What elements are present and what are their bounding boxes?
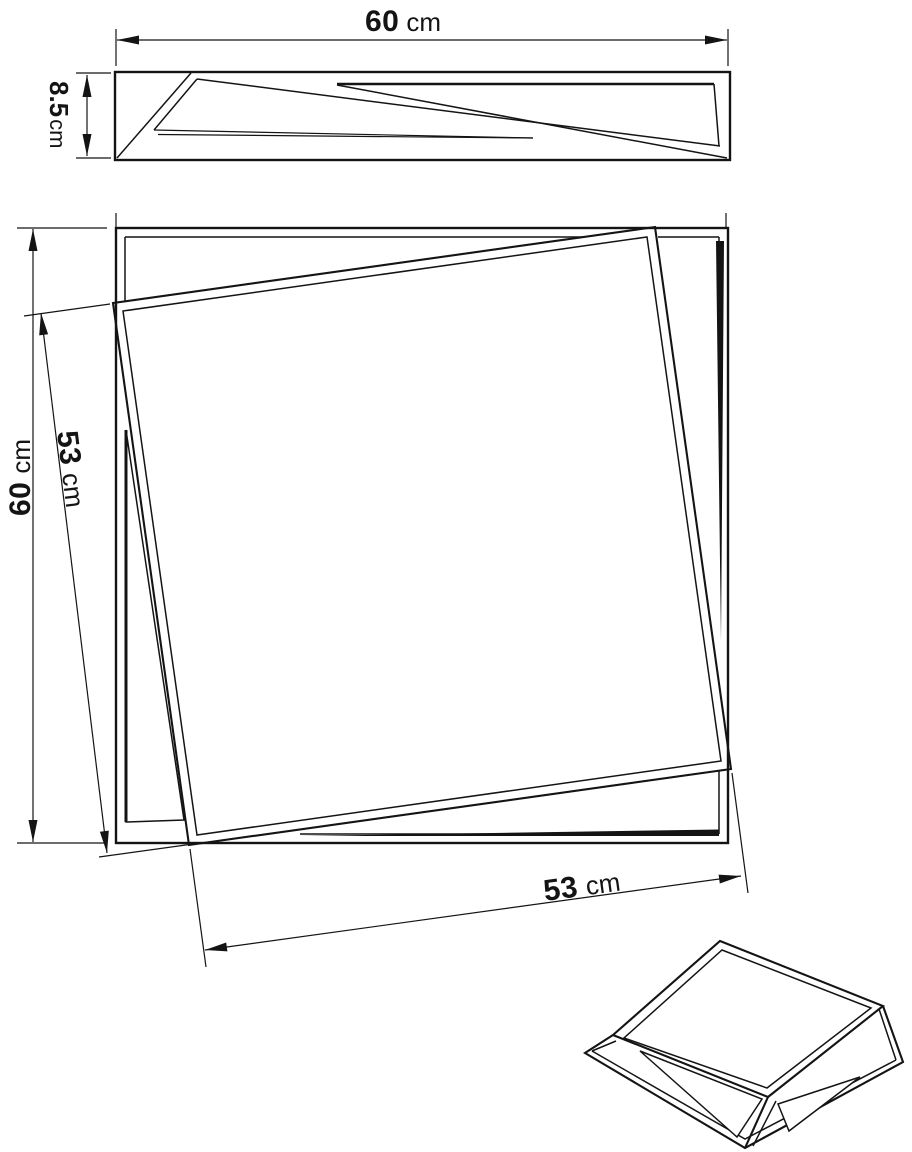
iso-top-frame-outer (613, 941, 883, 1097)
plan-side-label: 60cm (4, 439, 37, 516)
rotated-square-frame-inner (123, 237, 721, 835)
inner-square-bottom-dimension: 53cm (190, 773, 748, 967)
arrow-down-icon (100, 831, 109, 853)
iso-right-face-triangle (778, 1077, 860, 1131)
arrow-right-icon (719, 875, 741, 884)
inner-bottom-label: 53cm (541, 865, 622, 908)
bottom-sliver (300, 830, 719, 837)
profile-width-label: 60cm (365, 5, 441, 38)
profile-height-label: 8.5cm (44, 81, 74, 148)
drawing-canvas: 60cm 8.5cm 60cm (0, 0, 912, 1152)
arrow-left-icon (205, 943, 227, 952)
left-corner-triangle (126, 430, 184, 822)
profile-width-dimension: 60cm (116, 5, 728, 66)
arrow-up-icon (83, 75, 92, 97)
isometric-view (585, 941, 903, 1148)
technical-drawing-page: 60cm 8.5cm 60cm (0, 0, 912, 1152)
inner-side-label: 53cm (50, 429, 92, 509)
top-plan-view (113, 213, 731, 845)
plan-side-dimension: 60cm (4, 228, 107, 843)
arrow-down-icon (83, 134, 92, 156)
right-sliver (716, 241, 724, 642)
arrow-left-icon (117, 36, 139, 45)
iso-left-face-triangle (640, 1051, 762, 1137)
outer-square-frame (116, 228, 728, 843)
arrow-down-icon (29, 820, 38, 842)
arrow-up-icon (29, 229, 38, 251)
side-profile-view (115, 72, 730, 160)
rotated-square-frame-outer (113, 227, 731, 845)
arrow-up-icon (39, 313, 48, 335)
profile-height-dimension: 8.5cm (44, 73, 111, 158)
arrow-right-icon (705, 36, 727, 45)
